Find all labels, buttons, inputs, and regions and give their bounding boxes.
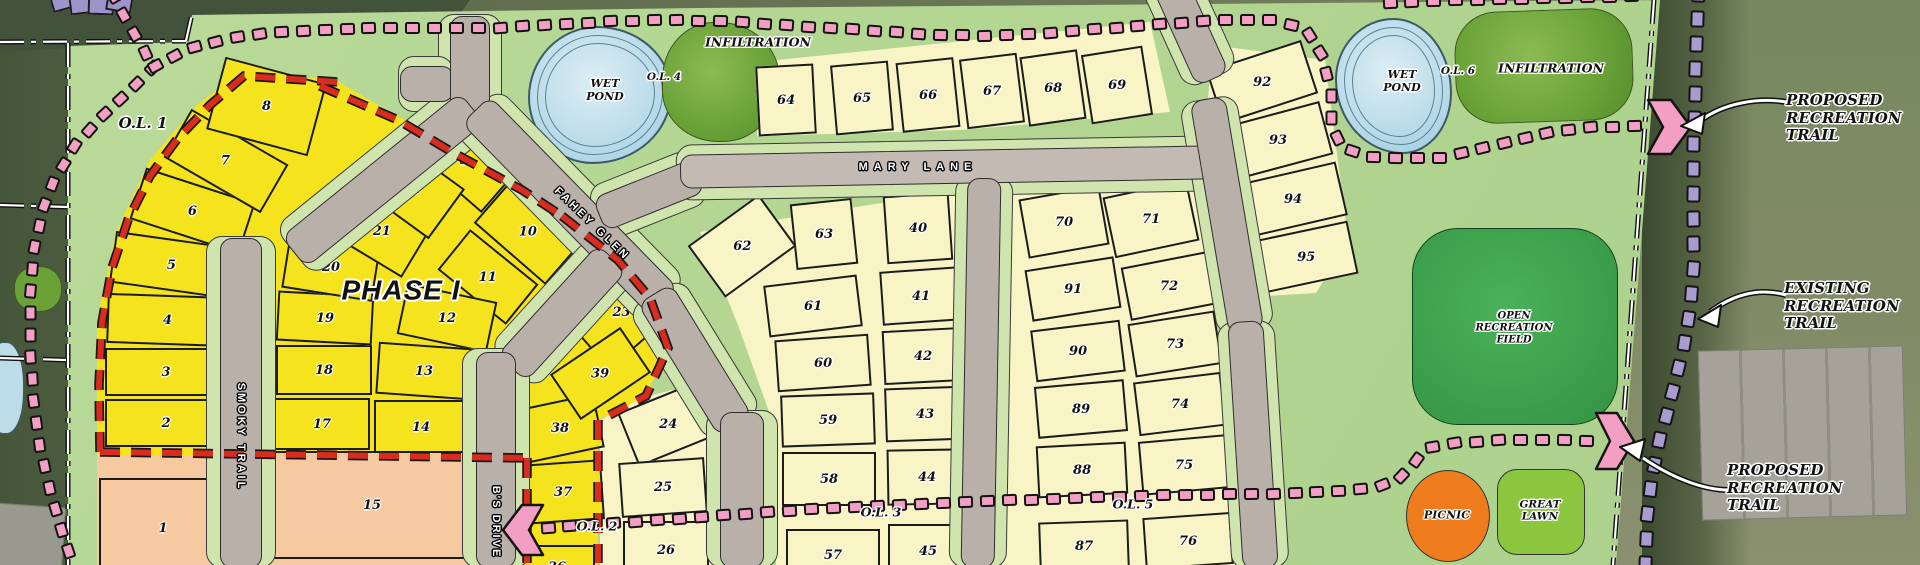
pink-trail-square [735,16,751,29]
pink-trail-square [979,495,994,508]
pink-trail-square [493,21,509,34]
pink-trail-square [1536,0,1551,4]
pink-trail-square [54,155,72,174]
pink-trail-square [672,512,688,525]
pink-trail-square [910,27,926,40]
pink-trail-square [1199,489,1214,501]
pink-trail-square [36,196,53,214]
pink-trail-square [1325,110,1337,125]
pink-trail-square [1344,143,1362,159]
pink-trail-square [1580,0,1595,3]
pink-trail-square [1513,434,1528,446]
purple-trail-square [1643,480,1659,499]
pink-trail-square [738,507,754,520]
pink-trail-square [24,306,36,321]
pink-trail-square [1240,14,1255,26]
pink-trail-square [1448,0,1463,7]
pink-trail-square [1329,129,1346,148]
pink-trail-square [757,17,773,30]
pink-trail-square [1382,0,1398,9]
pink-trail-square [1353,483,1369,496]
pink-trail-square [691,14,706,26]
pink-trail-square [1407,450,1425,469]
pink-trail-square [804,503,820,516]
pink-trail-square [186,40,204,55]
pink-trail-square [650,514,666,527]
pink-trail-square [1064,25,1080,38]
pink-trail-square [405,22,420,34]
pink-trail-square [957,496,972,509]
pink-trail-square [779,19,795,32]
pink-trail-square [625,15,640,27]
pink-trail-square [1468,435,1484,448]
pink-trail-square [1108,21,1124,34]
pink-trail-square [1086,23,1102,36]
purple-trail-square [1686,260,1701,278]
pink-trail-square [126,25,144,44]
pink-trail-square [1196,15,1212,28]
pink-trail-square [24,328,36,343]
pink-trail-square [1152,17,1168,30]
pink-trail-square [603,15,619,28]
pink-trail-square [1404,0,1420,8]
pink-trail-square [1470,0,1485,6]
pink-trail-square [53,521,69,539]
pink-trail-square [1283,17,1300,32]
pink-trail-square [1514,0,1529,5]
pink-trail-square [891,499,907,512]
pink-trail-square [1410,152,1425,164]
pink-trail-square [889,26,905,39]
pink-trail-square [1111,490,1126,502]
purple-trail-square [1639,530,1654,548]
pink-trail-square [1392,466,1411,485]
pink-trail-square [826,502,842,515]
pink-trail-square [37,458,52,475]
pink-trail-square [1174,16,1190,29]
pink-trail-square [1490,434,1506,447]
pink-trail-square [1424,440,1441,454]
pink-trail-square [111,89,130,108]
pink-trail-square [1388,152,1403,164]
pink-trail-square [1535,434,1550,446]
purple-trail-square [1688,60,1702,77]
pink-trail-square [42,479,57,496]
pink-trail-square [207,34,225,49]
pink-trail-square [1130,19,1146,32]
pink-trail-square [540,521,556,534]
pink-trail-square [27,393,41,410]
trails-layer [0,0,1920,565]
pink-trail-square [1561,123,1577,136]
purple-trail-square [1676,334,1692,353]
purple-trail-square [1646,455,1663,475]
pink-trail-square [1474,140,1491,155]
pink-trail-square [1021,28,1036,40]
pink-trail-square [30,415,44,432]
pink-trail-square [80,120,99,139]
pink-trail-square [427,22,442,34]
pink-trail-square [823,22,839,35]
pink-trail-square [669,14,684,26]
pink-trail-square [847,501,863,514]
pink-trail-square [1300,25,1318,44]
purple-trail-square [1640,505,1656,524]
pink-trail-square [1538,125,1555,140]
site-plan-map: 1234567891011121314151718192021222324252… [0,0,1920,565]
pink-trail-square [1579,435,1594,447]
pink-trail-square [95,104,114,123]
pink-trail-square [759,505,775,518]
pink-trail-square [869,500,885,513]
purple-trail-square [1657,406,1675,426]
pink-trail-square [1426,0,1441,7]
pink-trail-square [165,47,184,65]
pink-trail-square [1221,488,1236,500]
pink-trail-square [44,175,61,193]
pink-trail-square [537,19,553,32]
pink-trail-square [1373,477,1391,494]
pink-trail-square [845,23,861,36]
purple-trail-square [1687,110,1701,127]
pink-trail-square [955,29,970,41]
pink-trail-square [935,497,950,510]
pink-trail-square [1517,130,1534,145]
pink-trail-square [449,22,464,34]
pink-trail-square [24,349,37,365]
pink-trail-square [1089,491,1104,504]
pink-trail-square [1042,27,1058,40]
pink-trail-square [115,6,133,25]
pink-trail-square [383,22,398,34]
purple-trail-square [1684,285,1699,303]
pink-trail-square [1001,494,1016,507]
pink-trail-square [933,28,948,40]
pink-trail-square [713,15,728,27]
pink-trail-square [1045,492,1060,505]
pink-trail-square [1177,489,1192,501]
pink-trail-square [606,517,622,530]
purple-trail-square [1689,35,1704,52]
pink-trail-square [867,24,883,37]
purple-trail-square [1686,210,1700,227]
purple-trail-square [1687,135,1701,152]
pink-trail-square [1492,0,1507,5]
pink-trail-square [1319,66,1334,84]
pink-trail-square [33,436,47,453]
pink-trail-square [647,14,662,26]
pink-trail-square [339,23,354,35]
pink-trail-square [1602,0,1617,3]
pink-trail-square [60,542,76,560]
pink-trail-square [515,20,531,33]
purple-trail-square [1680,309,1696,328]
pink-trail-square [32,217,47,234]
pink-trail-square [1262,14,1277,26]
pink-trail-square [1312,44,1330,63]
pink-trail-square [295,25,311,38]
pink-trail-square [317,24,332,36]
pink-trail-square [1557,434,1572,446]
pink-trail-square [361,22,376,34]
purple-trail-square [1688,85,1702,102]
pink-trail-square [999,29,1014,41]
pink-trail-square [273,26,289,39]
pink-trail-square [127,74,146,93]
pink-trail-square [1558,0,1573,4]
pink-trail-square [628,515,644,528]
pink-trail-square [1325,88,1337,103]
pink-trail-square [1446,436,1463,450]
pink-trail-square [801,20,817,33]
pink-trail-square [1287,486,1302,499]
purple-trail-square [1664,382,1682,402]
pink-trail-square [581,16,597,29]
pink-trail-square [47,500,63,518]
purple-trail-square [1638,555,1653,565]
pink-trail-square [584,518,600,531]
pink-trail-square [229,30,246,44]
pink-trail-square [471,22,486,34]
pink-trail-square [1155,489,1170,501]
pink-trail-square [1582,121,1598,134]
pink-trail-square [1453,146,1470,161]
pink-trail-square [1265,487,1280,500]
pink-trail-square [1432,152,1447,164]
pink-trail-square [559,17,575,30]
pink-trail-square [1218,14,1233,26]
purple-trail-square [1651,430,1668,450]
purple-trail-square [1691,0,1706,3]
pink-trail-square [977,30,992,42]
pink-trail-square [26,261,39,277]
purple-trail-square [1687,235,1701,252]
pink-trail-square [562,520,578,533]
pink-trail-square [251,27,268,41]
purple-trail-square [1690,10,1705,27]
pink-trail-square [1495,135,1512,150]
pink-trail-square [1605,120,1620,132]
purple-trail-square [1670,358,1688,378]
pink-trail-square [1627,120,1642,132]
pink-trail-square [1309,486,1324,499]
purple-trail-square [1686,160,1700,177]
pink-trail-square [782,504,798,517]
pink-trail-square [24,283,37,299]
pink-trail-square [1243,488,1258,500]
purple-trail-square [1686,185,1700,202]
pink-trail-square [694,510,710,523]
pink-trail-square [1133,490,1148,502]
pink-trail-square [1366,151,1381,163]
pink-trail-square [913,498,929,511]
pink-trail-square [27,239,42,256]
pink-trail-square [104,0,122,5]
pink-trail-square [1624,0,1639,2]
pink-trail-square [1331,485,1346,498]
pink-trail-square [1067,492,1082,505]
pink-trail-square [26,371,39,387]
pink-trail-square [716,509,732,522]
pink-trail-square [1023,493,1038,506]
pink-trail-square [66,137,84,156]
